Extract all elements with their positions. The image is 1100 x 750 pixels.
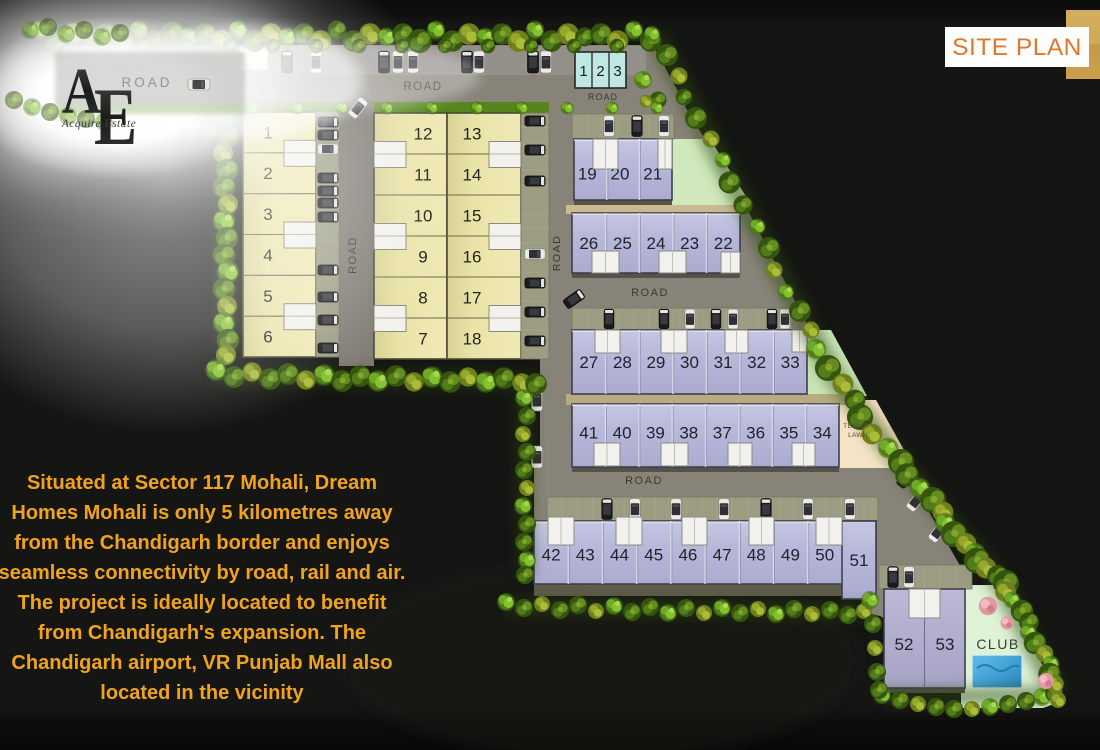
svg-text:CLUB: CLUB [976, 636, 1019, 652]
svg-text:42: 42 [542, 546, 561, 565]
svg-text:41: 41 [579, 424, 598, 443]
svg-text:24: 24 [647, 234, 666, 253]
svg-text:SITE PLAN: SITE PLAN [952, 34, 1082, 61]
svg-text:Situated at Sector 117 Mohali,: Situated at Sector 117 Mohali, Dream [27, 472, 377, 494]
svg-text:49: 49 [781, 546, 800, 565]
svg-text:47: 47 [713, 546, 732, 565]
svg-text:Homes Mohali is only 5 kilomet: Homes Mohali is only 5 kilometres away [11, 502, 393, 524]
svg-text:44: 44 [610, 546, 629, 565]
svg-text:ROAD: ROAD [625, 475, 663, 487]
svg-text:17: 17 [463, 289, 482, 308]
svg-text:36: 36 [746, 424, 765, 443]
svg-text:28: 28 [613, 353, 632, 372]
svg-text:32: 32 [747, 353, 766, 372]
svg-text:7: 7 [418, 330, 427, 349]
svg-text:seamless connectivity by road,: seamless connectivity by road, rail and … [0, 562, 405, 584]
svg-text:29: 29 [646, 353, 665, 372]
svg-text:48: 48 [747, 546, 766, 565]
svg-text:35: 35 [779, 424, 798, 443]
svg-text:34: 34 [813, 424, 832, 443]
svg-text:Chandigarh airport, VR Punjab: Chandigarh airport, VR Punjab Mall also [11, 652, 392, 674]
svg-text:38: 38 [679, 424, 698, 443]
svg-text:43: 43 [576, 546, 595, 565]
svg-text:from the Chandigarh border and: from the Chandigarh border and enjoys [14, 532, 390, 554]
svg-text:ROAD: ROAD [631, 287, 669, 299]
svg-text:23: 23 [680, 234, 699, 253]
svg-text:E: E [94, 71, 137, 162]
svg-text:ROAD: ROAD [588, 92, 618, 102]
svg-text:13: 13 [463, 125, 482, 144]
svg-text:50: 50 [815, 546, 834, 565]
svg-text:39: 39 [646, 424, 665, 443]
svg-text:LAWN: LAWN [848, 432, 868, 439]
svg-text:37: 37 [713, 424, 732, 443]
svg-text:14: 14 [463, 166, 482, 185]
svg-text:30: 30 [680, 353, 699, 372]
svg-text:16: 16 [463, 248, 482, 267]
svg-text:22: 22 [714, 234, 733, 253]
svg-text:53: 53 [936, 635, 955, 654]
svg-text:25: 25 [613, 234, 632, 253]
svg-text:located in the vicinity: located in the vicinity [100, 682, 304, 704]
svg-text:3: 3 [613, 63, 621, 80]
svg-text:18: 18 [463, 330, 482, 349]
svg-text:52: 52 [895, 635, 914, 654]
svg-text:31: 31 [714, 353, 733, 372]
svg-text:33: 33 [781, 353, 800, 372]
svg-text:51: 51 [850, 551, 869, 570]
svg-text:40: 40 [613, 424, 632, 443]
svg-text:2: 2 [596, 63, 604, 80]
svg-text:from Chandigarh's expansion. T: from Chandigarh's expansion. The [38, 622, 366, 644]
svg-text:1: 1 [579, 63, 587, 80]
svg-text:45: 45 [644, 546, 663, 565]
svg-text:Acquire Estate: Acquire Estate [61, 118, 137, 130]
svg-text:15: 15 [463, 207, 482, 226]
svg-text:27: 27 [579, 353, 598, 372]
svg-text:46: 46 [678, 546, 697, 565]
svg-text:ROAD: ROAD [551, 235, 563, 271]
svg-text:TENNIS: TENNIS [843, 423, 869, 430]
svg-text:The project is ideally located: The project is ideally located to benefi… [18, 592, 387, 614]
svg-text:26: 26 [579, 234, 598, 253]
